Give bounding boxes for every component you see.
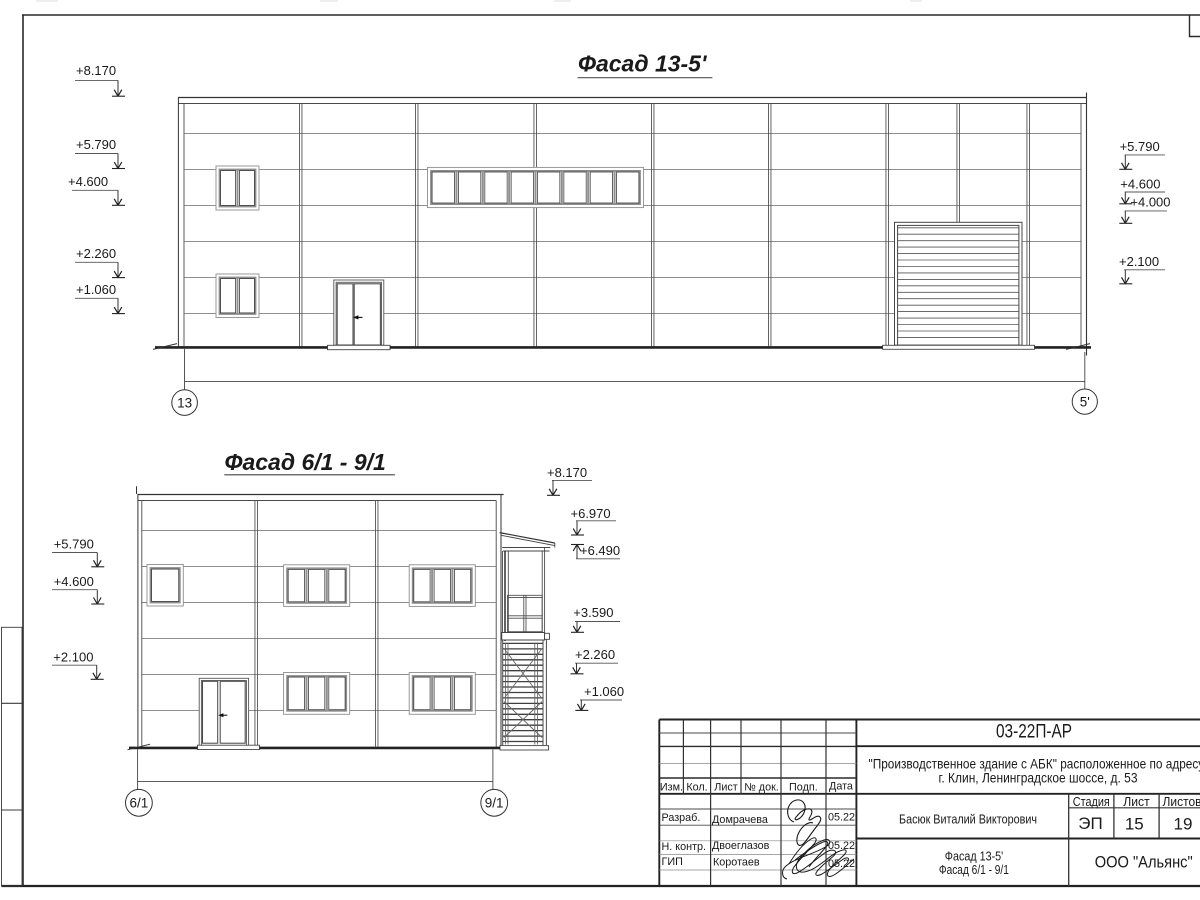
svg-text:+4.600: +4.600	[68, 174, 108, 189]
svg-text:Кол.: Кол.	[686, 781, 707, 793]
svg-text:19: 19	[1174, 815, 1193, 834]
svg-text:Фасад 13-5': Фасад 13-5'	[578, 51, 708, 77]
svg-text:Двоеглазов: Двоеглазов	[712, 840, 770, 852]
svg-text:+8.170: +8.170	[547, 465, 587, 480]
svg-text:03-22П-АР: 03-22П-АР	[996, 722, 1072, 743]
svg-text:ООО "Альянс": ООО "Альянс"	[1095, 852, 1193, 871]
svg-text:Дата: Дата	[829, 781, 853, 793]
svg-text:Басюк Виталий Викторович: Басюк Виталий Викторович	[899, 811, 1037, 826]
svg-text:+5.790: +5.790	[54, 537, 94, 552]
svg-text:г. Клин, Ленинградское шоссе,: г. Клин, Ленинградское шоссе, д. 53	[939, 770, 1138, 786]
svg-text:Домрачева: Домрачева	[712, 814, 768, 826]
svg-text:+6.970: +6.970	[571, 506, 611, 521]
svg-text:+5.790: +5.790	[76, 137, 116, 152]
svg-text:13: 13	[177, 395, 192, 410]
svg-text:Фасад 6/1 - 9/1: Фасад 6/1 - 9/1	[939, 863, 1009, 877]
svg-text:+8.170: +8.170	[76, 63, 116, 78]
svg-text:Листов: Листов	[1163, 795, 1200, 809]
svg-text:5': 5'	[1080, 394, 1090, 409]
svg-text:05.22: 05.22	[828, 811, 855, 823]
svg-text:Фасад 13-5': Фасад 13-5'	[945, 850, 1004, 864]
svg-text:Подп.: Подп.	[789, 781, 818, 793]
svg-text:+4.600: +4.600	[1120, 176, 1160, 191]
svg-text:9/1: 9/1	[485, 796, 504, 811]
svg-text:+1.060: +1.060	[76, 282, 116, 297]
svg-text:Разраб.: Разраб.	[662, 812, 701, 824]
svg-text:+4.000: +4.000	[1130, 194, 1170, 209]
svg-text:Лист: Лист	[714, 781, 738, 793]
svg-text:Фасад 6/1 - 9/1: Фасад 6/1 - 9/1	[225, 449, 386, 475]
svg-text:Изм.: Изм.	[660, 781, 683, 793]
svg-text:6/1: 6/1	[130, 796, 149, 811]
svg-text:05.22: 05.22	[828, 858, 855, 870]
svg-text:+2.260: +2.260	[575, 647, 615, 662]
svg-text:15: 15	[1125, 815, 1144, 834]
svg-text:+5.790: +5.790	[1120, 139, 1160, 154]
svg-text:+1.060: +1.060	[584, 684, 624, 699]
svg-text:Коротаев: Коротаев	[713, 856, 760, 868]
svg-text:Стадия: Стадия	[1073, 795, 1110, 809]
svg-text:+6.490: +6.490	[580, 543, 620, 558]
svg-text:ЭП: ЭП	[1078, 814, 1102, 833]
svg-text:+4.600: +4.600	[54, 574, 94, 589]
svg-text:+2.100: +2.100	[53, 649, 93, 664]
svg-text:№ док.: № док.	[744, 781, 779, 793]
svg-text:+3.590: +3.590	[573, 605, 613, 620]
svg-text:Лист: Лист	[1123, 795, 1150, 809]
svg-text:+2.100: +2.100	[1119, 254, 1159, 269]
svg-text:Н. контр.: Н. контр.	[662, 841, 707, 853]
svg-text:+2.260: +2.260	[76, 246, 116, 261]
svg-text:ГИП: ГИП	[662, 856, 683, 868]
